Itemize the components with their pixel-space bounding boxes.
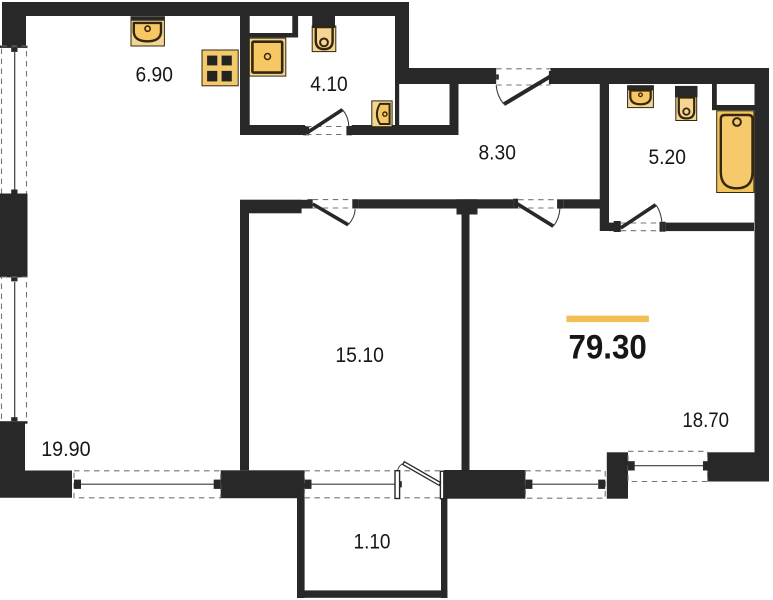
svg-text:6.90: 6.90 xyxy=(136,62,174,86)
svg-text:79.30: 79.30 xyxy=(569,328,647,366)
svg-text:8.30: 8.30 xyxy=(479,140,517,164)
svg-text:1.10: 1.10 xyxy=(354,530,391,554)
svg-text:18.70: 18.70 xyxy=(682,408,729,432)
svg-text:15.10: 15.10 xyxy=(335,343,384,367)
svg-text:4.10: 4.10 xyxy=(310,72,348,96)
svg-text:5.20: 5.20 xyxy=(649,145,687,169)
svg-text:19.90: 19.90 xyxy=(41,437,91,461)
